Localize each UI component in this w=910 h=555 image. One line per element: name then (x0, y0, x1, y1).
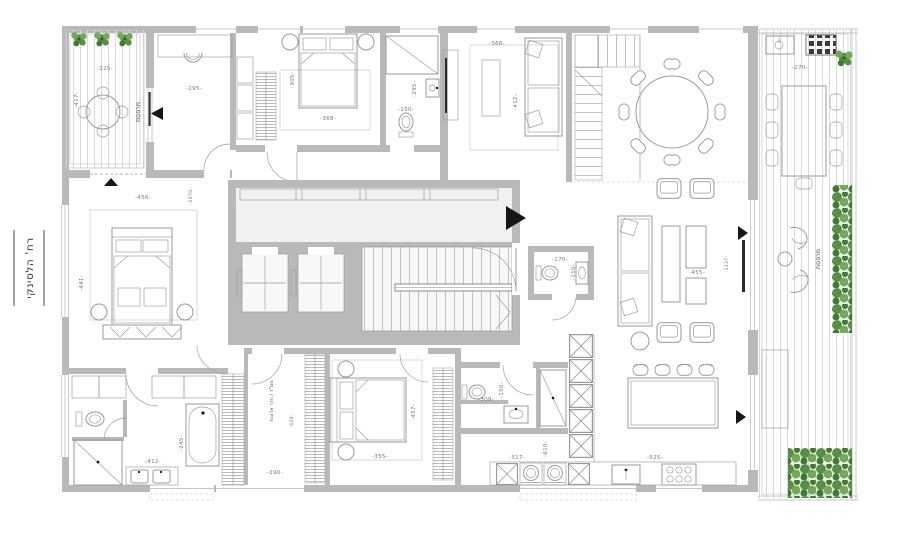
dim-label: -309- (478, 397, 494, 403)
building-core (228, 180, 526, 345)
terrace-right: -270- מרפסת (758, 29, 858, 500)
floor-plan-drawing: רח' הלסינקי (0, 0, 910, 555)
dim-label: -1070- (188, 188, 194, 205)
dim-label: -525- (647, 455, 663, 461)
pantry-cabinets (570, 335, 593, 458)
room-label-closet: ממ"ד / חדר ארונות (269, 380, 275, 421)
terrace-sliding-door-lower (748, 375, 758, 470)
dim-label: -441- (79, 275, 85, 291)
bar-stool (699, 364, 714, 375)
dim-label: -368- (320, 116, 336, 122)
bar-stool (655, 364, 670, 375)
dim-label: -429- (289, 414, 295, 428)
bath-window (60, 375, 71, 457)
dim-label: -170- (552, 257, 568, 263)
dim-label: -455- (689, 270, 705, 276)
street-name-text: רח' הלסינקי (24, 237, 36, 299)
elevator-1 (237, 247, 288, 312)
wardrobe-rail (256, 72, 276, 140)
dim-label: -610- (543, 441, 549, 457)
dim-label: -270- (792, 65, 808, 71)
dim-label: -225- (97, 66, 113, 72)
dim-label: -1237- (724, 256, 730, 273)
room-label-terrace: מרפסת (814, 249, 822, 269)
dim-label: -150- (499, 382, 505, 398)
open-door-panel (742, 240, 745, 292)
dim-label: -150- (398, 107, 414, 113)
dim-label: -417- (74, 92, 80, 108)
dim-label: -457- (411, 404, 417, 420)
tv-icon (445, 58, 447, 113)
dim-label: -290- (267, 470, 283, 476)
room-label-balcony: מרפסת (134, 102, 142, 122)
grill (806, 35, 836, 55)
dim-label: -295- (186, 86, 202, 92)
dim-label: -110- (571, 264, 577, 280)
wardrobe-rail (433, 368, 453, 480)
base-cabinet (569, 464, 590, 485)
dim-label: -456- (135, 195, 151, 201)
laundry-sink (497, 464, 518, 485)
bar-stool (677, 364, 692, 375)
stairwell (362, 247, 512, 331)
dim-label: -317- (509, 455, 525, 461)
dim-label: -412- (513, 94, 519, 110)
floor-plan-canvas: רח' הלסינקי (0, 0, 910, 555)
dim-label: -355- (372, 454, 388, 460)
corridor-floor (236, 188, 512, 242)
hedge (832, 185, 852, 333)
dim-label: -245- (179, 435, 185, 451)
wardrobe-rail (305, 354, 325, 483)
bar-stool (633, 364, 648, 375)
hedge (788, 448, 852, 498)
master-window (60, 205, 71, 317)
wardrobe-rail (222, 374, 244, 485)
dim-label: -295- (412, 81, 418, 97)
dim-label: -305- (290, 72, 296, 88)
dim-label: -366- (489, 41, 505, 47)
elevator-2 (291, 247, 344, 312)
dim-label: -412- (145, 459, 161, 465)
